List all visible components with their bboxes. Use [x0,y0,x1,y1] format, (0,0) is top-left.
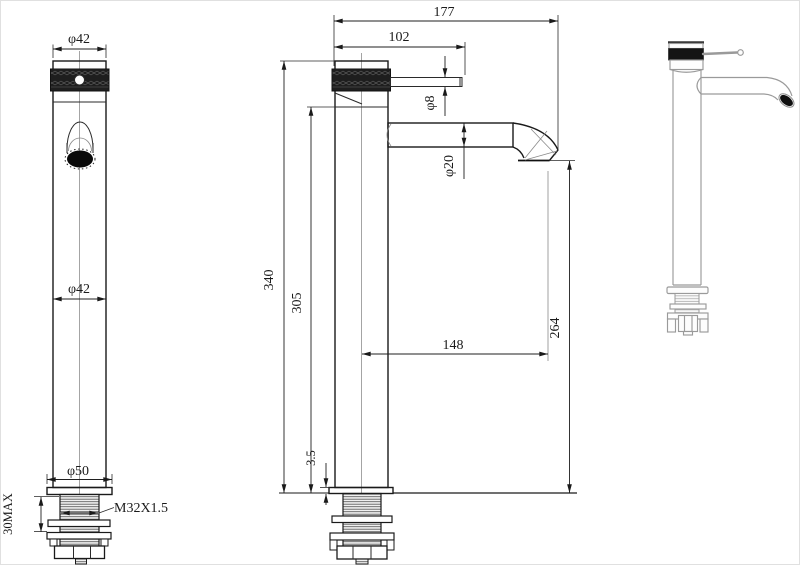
iso-upper-body [670,60,703,70]
dim-label-handle-reach: 102 [389,30,410,45]
side-mounting-nut [337,546,387,559]
dim-label-base-diameter: φ50 [67,464,89,479]
front-washer-2 [47,533,111,540]
iso-view [667,43,796,336]
dim-front-mount-depth: 30MAX [1,493,59,535]
iso-column [673,70,701,286]
dim-label-spout-diameter: φ20 [442,155,457,177]
dim-side-outlet-height: 264 [548,161,575,494]
iso-handle-rod [703,53,737,55]
iso-knurl-band [669,49,704,61]
dim-label-plate-thickness: 3.5 [304,450,318,466]
dim-side-shoulder-height: 305 [290,107,335,493]
dim-label-shoulder-height: 305 [290,293,305,314]
front-mounting-nut [55,546,105,559]
iso-mounting-nut [679,316,698,332]
dim-side-overall-height: 340 [262,61,335,493]
iso-base [667,287,708,335]
side-spout-elbow [513,123,558,161]
dim-label-thread-spec: M32X1.5 [114,501,168,516]
iso-handle-knob [738,50,744,56]
side-knurl-band [332,69,391,91]
front-view: φ42 φ42 φ50 M32X1.5 30MAX [1,32,168,564]
front-washer-1 [48,520,110,527]
dim-label-top-diameter: φ42 [68,32,90,47]
side-washer-2 [330,533,394,540]
front-aerator [67,151,93,168]
dim-label-overall-reach: 177 [434,5,455,20]
front-shank-stub [76,559,87,565]
dim-label-spout-reach: 148 [443,338,464,353]
dim-label-outlet-height: 264 [548,318,563,339]
front-handle-screw [75,75,85,85]
iso-spout [697,78,796,110]
side-washer-1 [332,516,392,523]
dim-label-overall-height: 340 [262,270,277,291]
side-view: 177 102 φ8 φ20 340 305 [262,5,577,564]
dim-side-plate-thickness: 3.5 [304,450,330,505]
side-base [279,488,577,565]
drawing-sheet: φ42 φ42 φ50 M32X1.5 30MAX [0,0,800,565]
dim-label-rod-diameter: φ8 [423,95,438,110]
front-base [47,488,112,565]
dim-label-mount-depth: 30MAX [1,493,15,535]
technical-drawing-canvas: φ42 φ42 φ50 M32X1.5 30MAX [1,1,800,566]
side-shank-stub [356,559,368,564]
dim-side-spout-reach: 148 [362,171,548,361]
dim-label-body-diameter: φ42 [68,282,90,297]
